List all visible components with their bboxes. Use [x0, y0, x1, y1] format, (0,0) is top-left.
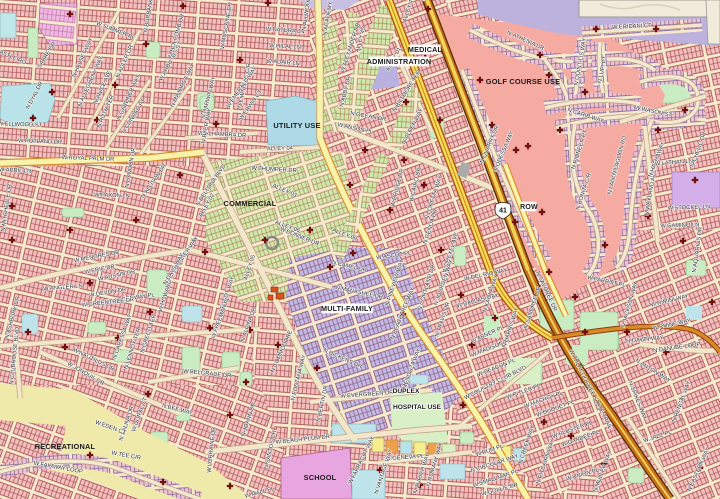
svg-text:MULTI-FAMILY: MULTI-FAMILY [321, 304, 373, 313]
svg-text:GOLF COURSE USE: GOLF COURSE USE [486, 77, 560, 86]
svg-text:W.PAXON LN: W.PAXON LN [94, 192, 130, 199]
svg-text:HOSPITAL USE: HOSPITAL USE [393, 404, 442, 411]
svg-text:UTILITY USE: UTILITY USE [273, 121, 320, 130]
svg-text:SCHOOL: SCHOOL [304, 473, 337, 482]
svg-text:RECREATIONAL: RECREATIONAL [35, 442, 96, 451]
svg-text:DUPLEX: DUPLEX [393, 388, 420, 395]
svg-text:ROW: ROW [520, 204, 538, 211]
svg-text:MEDICAL: MEDICAL [408, 45, 443, 54]
svg-text:ADMINISTRATION: ADMINISTRATION [367, 57, 432, 66]
svg-text:41: 41 [499, 208, 507, 215]
svg-text:ALLEY 04: ALLEY 04 [267, 146, 294, 153]
svg-text:COMMERCIAL: COMMERCIAL [224, 199, 277, 208]
